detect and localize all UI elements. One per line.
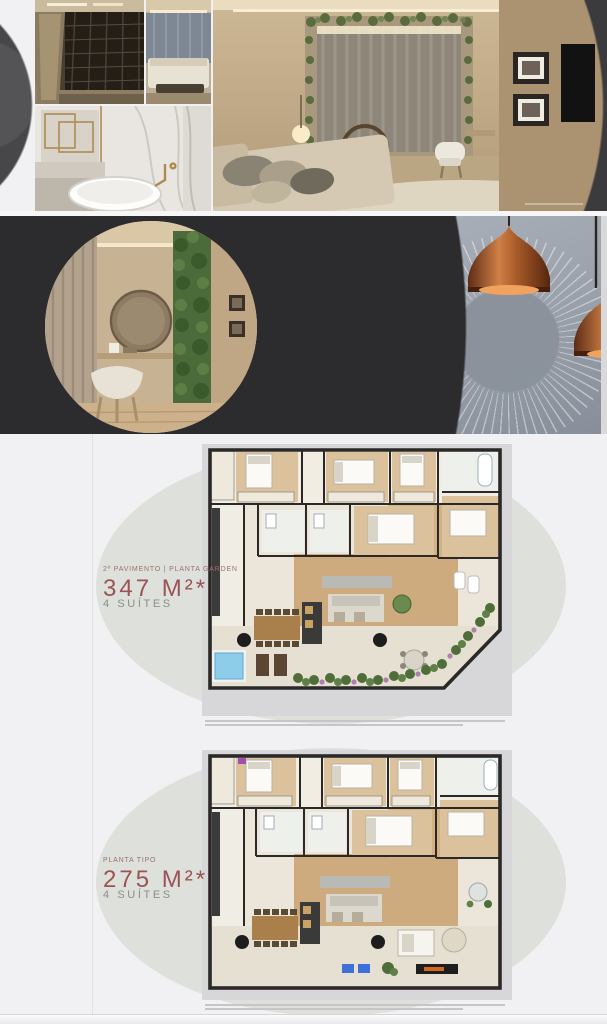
kitchen-counter: [212, 508, 220, 616]
fine-print-line: [205, 1004, 505, 1006]
top-right-dark-arc: [560, 0, 607, 211]
pool: [212, 650, 246, 682]
plan2-badge: PLANTA TIPO: [103, 857, 156, 864]
floorplan-tipo: [202, 750, 512, 1000]
fine-print-line: [205, 724, 463, 726]
closet-scene: [35, 0, 144, 104]
fine-print-line: [205, 720, 505, 722]
left-dark-arc: [0, 0, 40, 211]
dining-table: [254, 609, 300, 647]
brochure-page: 2º PAVIMENTO | PLANTA GARDEN 347 M²* 4 S…: [0, 0, 607, 1024]
sofa-set: [326, 894, 382, 922]
fine-print-line: [205, 1008, 463, 1010]
right-edge-strip: [601, 216, 607, 434]
floorplan-garden: [202, 444, 512, 716]
master-bedroom-photo: [213, 0, 607, 211]
floorplan-tipo-drawing: [202, 750, 512, 1000]
bathtub: [478, 454, 492, 486]
plan2-suites: 4 SUÍTES: [103, 889, 173, 901]
bathroom-photo: [35, 106, 211, 211]
vanity-photo-circle: [45, 221, 257, 433]
sofa-set: [328, 594, 384, 622]
dining-table: [252, 909, 298, 947]
page-bottom-strip: [0, 1014, 607, 1024]
charcoal-circle-overlay: [372, 216, 482, 434]
pendant-lamp-2: [574, 286, 601, 359]
suite-scene: [146, 0, 211, 104]
purple-accent: [238, 758, 246, 764]
walk-in-closet-photo: [35, 0, 144, 104]
plan1-suites: 4 SUÍTES: [103, 598, 173, 610]
round-rug: [442, 928, 466, 952]
bathroom-scene: [35, 106, 211, 211]
suite-photo: [146, 0, 211, 104]
fold-hairline: [92, 434, 93, 1014]
pendant-lamps-photo: [372, 216, 601, 434]
floorplan-garden-drawing: [202, 444, 512, 716]
master-bedroom-scene: [213, 0, 607, 211]
vanity-scene: [45, 221, 257, 433]
plan1-badge: 2º PAVIMENTO | PLANTA GARDEN: [103, 566, 238, 573]
jacuzzi: [469, 883, 487, 901]
